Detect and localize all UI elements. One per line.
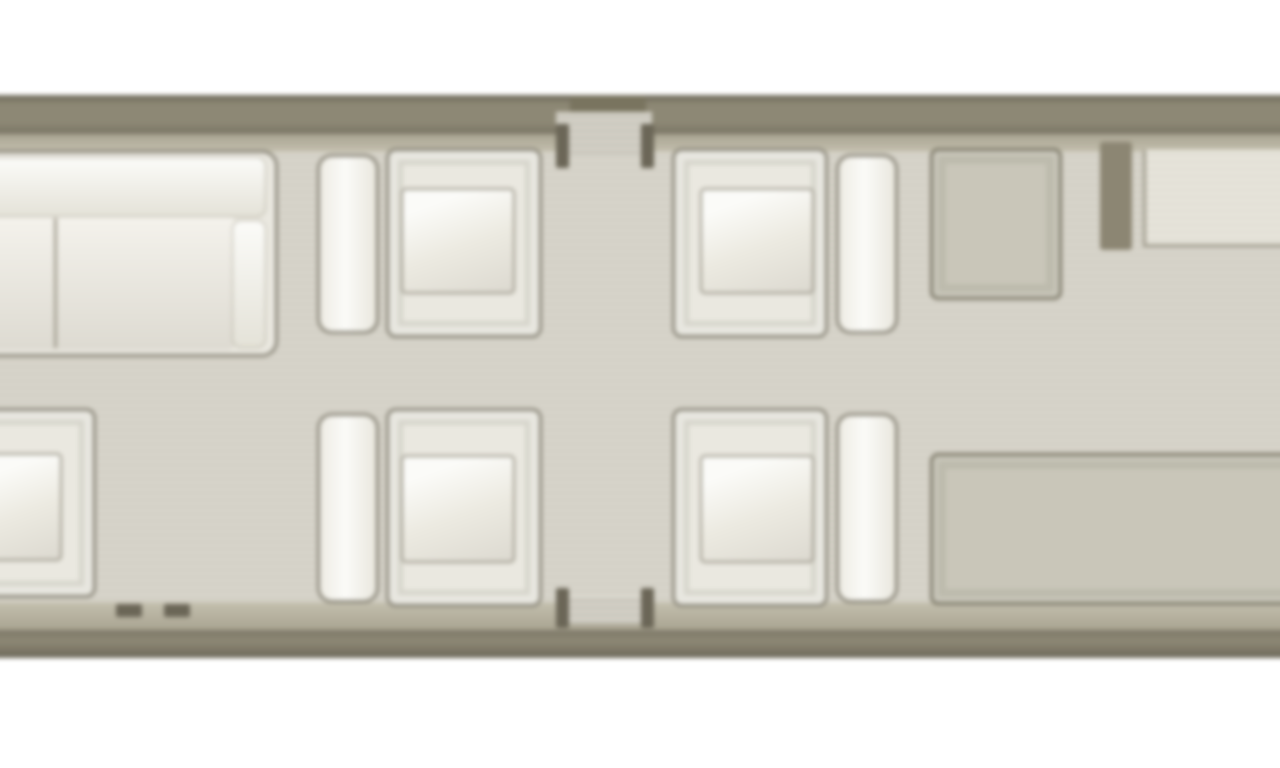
seat-back-forward-left bbox=[317, 154, 379, 334]
door-frame-post-bottom-left bbox=[556, 588, 569, 628]
galley-counter bbox=[1143, 150, 1280, 247]
divan-sofa-backrest bbox=[0, 157, 266, 217]
divan-sofa-divider bbox=[54, 218, 57, 348]
seat-back-forward-right bbox=[836, 154, 898, 334]
exit-mark-right bbox=[164, 604, 190, 617]
divan-sofa-armrest bbox=[232, 220, 266, 348]
club-chair-aft-right-cushion bbox=[700, 455, 814, 563]
door-frame-post-bottom-right bbox=[641, 588, 654, 628]
divan-sofa-seat bbox=[0, 216, 234, 350]
club-chair-forward-left-cushion bbox=[401, 188, 515, 294]
seat-back-aft-right bbox=[836, 413, 898, 603]
door-frame-post-top-right bbox=[641, 124, 654, 168]
entry-door-carpet-top bbox=[556, 112, 652, 154]
club-chair-aft-left-cushion bbox=[401, 455, 515, 563]
partition-wall bbox=[1100, 142, 1132, 250]
cabinet-table bbox=[930, 148, 1062, 300]
seat-back-aft-left bbox=[317, 413, 379, 603]
entry-door-carpet-bottom bbox=[556, 596, 652, 624]
club-chair-aft-edge-cushion bbox=[0, 453, 62, 561]
door-frame-post-top-left bbox=[556, 124, 569, 168]
aircraft-cabin-floorplan bbox=[0, 0, 1280, 768]
floorplan-render-layer bbox=[0, 0, 1280, 768]
exit-mark-left bbox=[116, 604, 142, 617]
fuselage-wall-bottom bbox=[0, 630, 1280, 658]
credenza bbox=[930, 453, 1280, 605]
club-chair-forward-right-cushion bbox=[700, 188, 814, 294]
